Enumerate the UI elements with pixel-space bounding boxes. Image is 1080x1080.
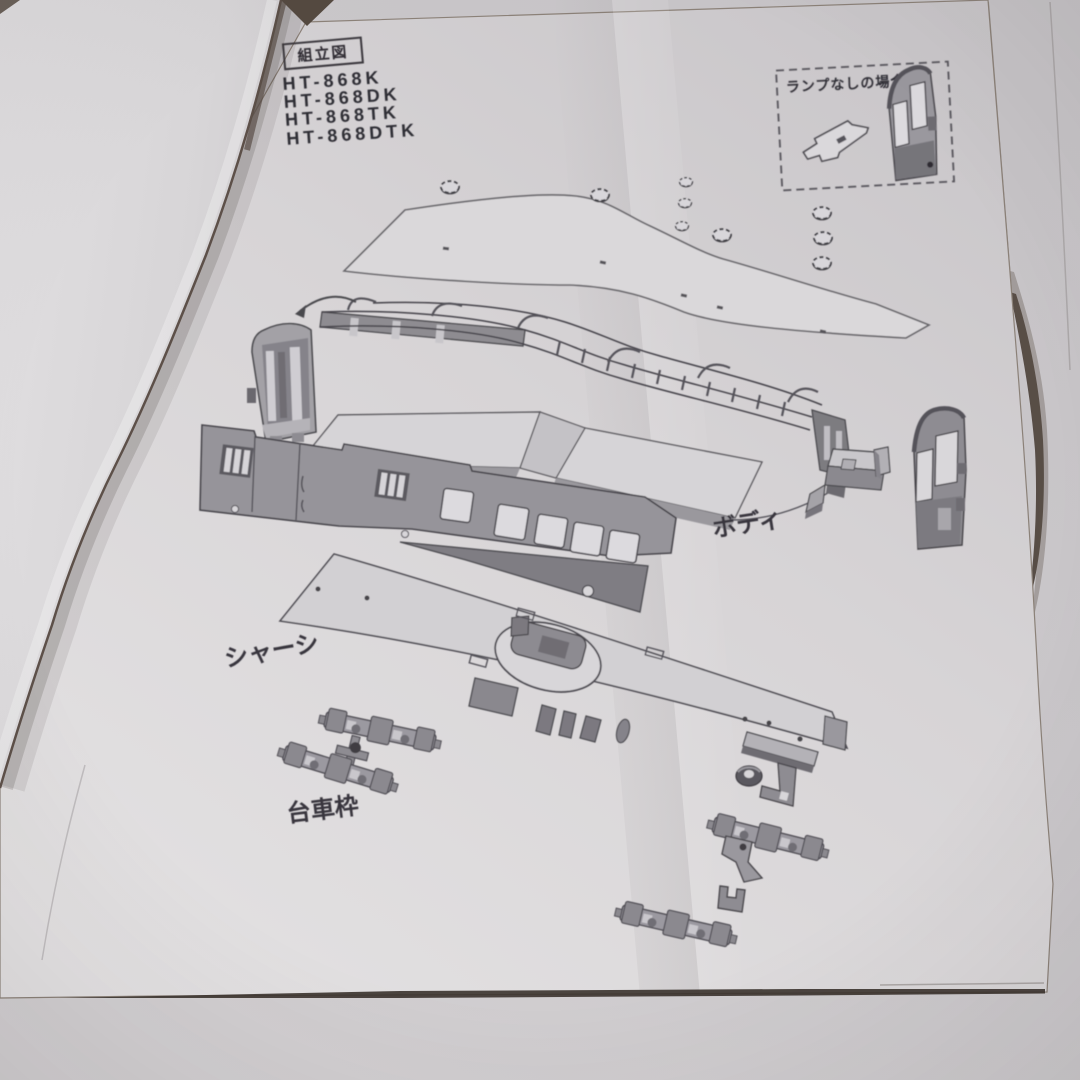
vignette bbox=[0, 0, 1080, 1080]
assembly-instruction-photo: 組立図 HT-868K HT-868DK HT-868TK HT-868DTK … bbox=[0, 0, 1080, 1080]
photo-of-assembly-sheet: 組立図 HT-868K HT-868DK HT-868TK HT-868DTK … bbox=[0, 0, 1080, 1080]
